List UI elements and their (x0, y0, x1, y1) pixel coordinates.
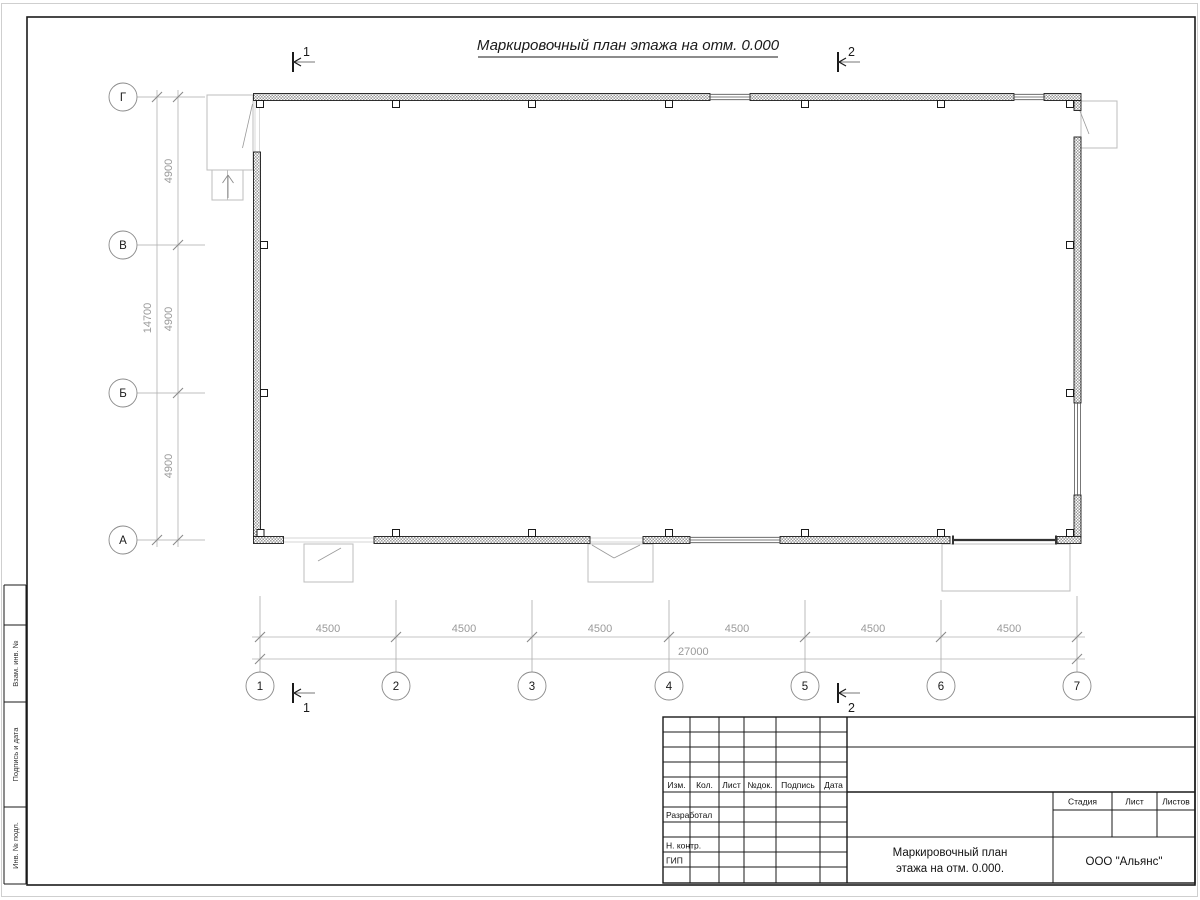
axis-row-a: А (119, 535, 127, 547)
section-label: 2 (848, 701, 855, 715)
tb-col-podpis: Подпись (781, 780, 815, 790)
section-mark-bottom-2: 2 (838, 683, 860, 715)
title-block: Изм. Кол. Лист №док. Подпись Дата Разраб… (663, 717, 1195, 883)
dim-bottom-3: 4500 (588, 623, 612, 635)
section-mark-top-1: 1 (293, 45, 315, 72)
tb-col-list: Лист (722, 780, 741, 790)
strip-label-podpis: Подпись и дата (11, 727, 20, 782)
strip-label-inv: Инв. № подл. (11, 822, 20, 869)
dim-left-1: 4900 (163, 159, 175, 183)
section-mark-top-2: 2 (838, 45, 860, 72)
tb-col-ndok: №док. (748, 780, 773, 790)
axis-col-5: 5 (802, 681, 808, 693)
strip-label-vzam: Взам. инв. № (11, 640, 20, 686)
door-swings (243, 104, 1090, 561)
dim-bottom-2: 4500 (452, 623, 476, 635)
tb-stage: Стадия (1068, 797, 1097, 807)
dim-bottom-4: 4500 (725, 623, 749, 635)
tb-row-nkontr: Н. контр. (666, 841, 701, 851)
drawing-title: Маркировочный план этажа на отм. 0.000 (477, 37, 780, 57)
axis-row-v: В (119, 240, 127, 252)
tb-doc-title-line2: этажа на отм. 0.000. (896, 863, 1004, 875)
windows (690, 94, 1080, 542)
walls (254, 94, 1082, 544)
floor-plan (207, 94, 1117, 592)
tb-sheet: Лист (1125, 797, 1144, 807)
floor-plan-drawing: Взам. инв. № Подпись и дата Инв. № подл.… (0, 0, 1200, 900)
section-label: 2 (848, 45, 855, 59)
stair-direction-arrow (223, 175, 234, 198)
axis-row-b: Б (119, 388, 127, 400)
section-mark-bottom-1: 1 (293, 683, 315, 715)
tb-row-gip: ГИП (666, 856, 683, 866)
tb-col-data: Дата (824, 780, 843, 790)
section-marks: 1 2 1 2 (293, 45, 860, 715)
axis-col-2: 2 (393, 681, 399, 693)
entrance-porches (207, 95, 1117, 591)
tb-col-kol: Кол. (696, 780, 713, 790)
axis-bubbles-left: Г В Б А (109, 83, 137, 554)
dim-bottom-total: 27000 (678, 646, 709, 658)
dim-left-2: 4900 (163, 307, 175, 331)
frame-side-strip: Взам. инв. № Подпись и дата Инв. № подл. (4, 585, 26, 884)
pilasters (257, 101, 1074, 537)
tb-col-izm: Изм. (667, 780, 685, 790)
door-thresholds (255, 101, 643, 542)
axis-col-4: 4 (666, 681, 673, 693)
drawing-sheet: Взам. инв. № Подпись и дата Инв. № подл.… (0, 0, 1200, 900)
axis-col-7: 7 (1074, 681, 1080, 693)
axis-col-6: 6 (938, 681, 944, 693)
tb-doc-title-line1: Маркировочный план (893, 847, 1008, 859)
section-label: 1 (303, 45, 310, 59)
dimension-chain-left: 4900 4900 4900 14700 (137, 90, 205, 547)
page-title: Маркировочный план этажа на отм. 0.000 (477, 37, 780, 54)
axis-row-g: Г (120, 92, 127, 104)
dim-bottom-1: 4500 (316, 623, 340, 635)
dim-left-3: 4900 (163, 454, 175, 478)
dim-bottom-6: 4500 (997, 623, 1021, 635)
tb-sheets: Листов (1162, 797, 1190, 807)
drawing-frame: Взам. инв. № Подпись и дата Инв. № подл. (2, 4, 1198, 897)
axis-bubbles-bottom: 1 2 3 4 5 6 7 (246, 672, 1091, 700)
dim-left-total: 14700 (142, 303, 154, 334)
tb-company: ООО "Альянс" (1086, 856, 1163, 868)
section-label: 1 (303, 701, 310, 715)
dimension-chain-bottom: 4500 4500 4500 4500 4500 4500 27000 (252, 596, 1085, 672)
tb-row-razrabotal: Разработал (666, 810, 712, 820)
axis-col-3: 3 (529, 681, 535, 693)
dim-bottom-5: 4500 (861, 623, 885, 635)
axis-col-1: 1 (257, 681, 263, 693)
gate (953, 536, 1056, 545)
